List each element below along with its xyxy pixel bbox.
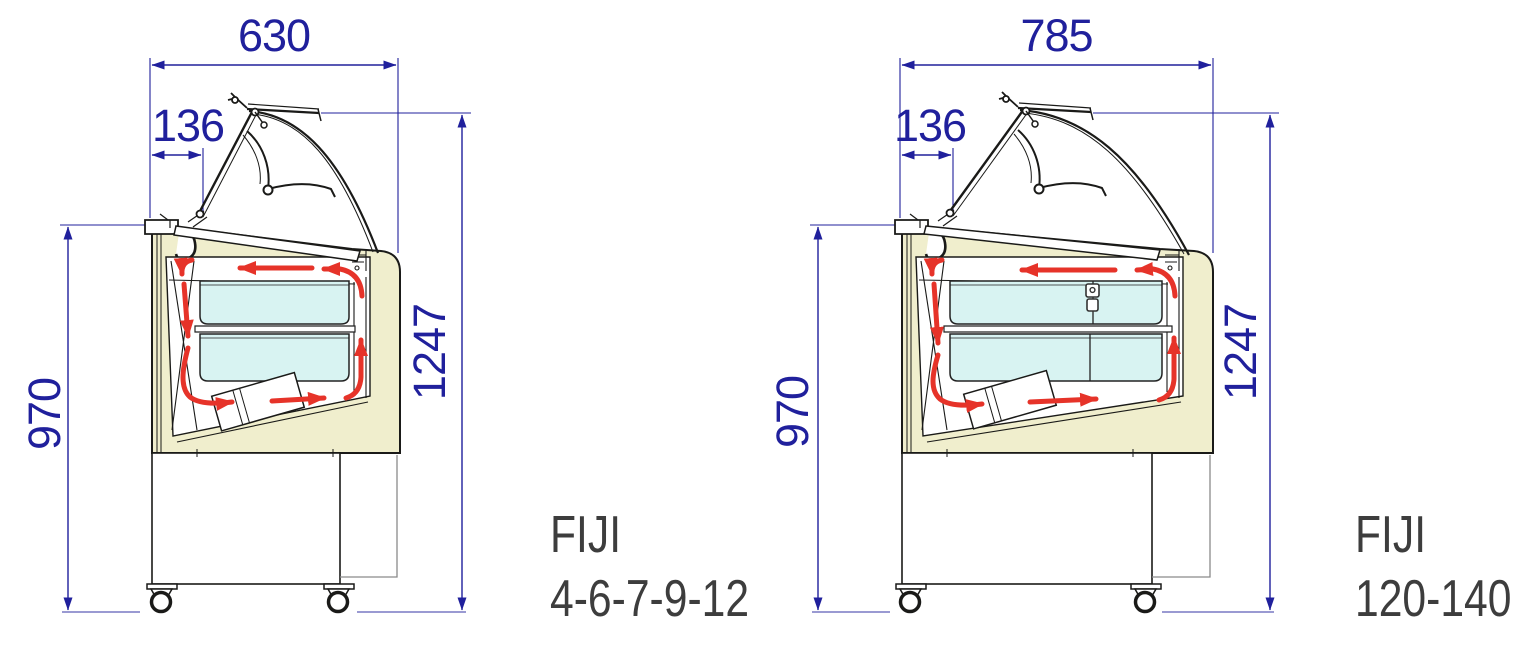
model-range-right: 120-140 [1355, 567, 1511, 631]
technical-drawing-canvas: 630 136 970 1247 785 136 970 1247 FIJI 4… [0, 0, 1516, 662]
dim-label-overall-height-right: 1247 [1217, 292, 1263, 412]
right-caster-front [896, 584, 926, 612]
left-base-cabinet [152, 449, 397, 584]
model-label-right: FIJI 120-140 [1355, 503, 1511, 631]
right-base-cabinet [902, 449, 1210, 584]
model-name-right: FIJI [1355, 503, 1511, 567]
dim-label-lid-overhang-right: 136 [890, 102, 970, 150]
right-unit-drawing [810, 58, 1279, 612]
tub-latch [1086, 284, 1099, 311]
left-caster-front [147, 584, 177, 612]
model-name-left: FIJI [550, 503, 749, 567]
dim-label-body-height-left: 970 [21, 354, 67, 474]
dim-label-body-height-right: 970 [769, 352, 815, 472]
model-range-left: 4-6-7-9-12 [550, 567, 749, 631]
dim-label-overall-width-right: 785 [900, 12, 1213, 60]
right-caster-rear [1131, 584, 1161, 612]
dim-label-overall-width-left: 630 [150, 12, 398, 60]
left-caster-rear [324, 584, 354, 612]
dim-label-overall-height-left: 1247 [406, 292, 452, 412]
drawing-svg [0, 0, 1516, 662]
dim-label-lid-overhang-left: 136 [148, 102, 228, 150]
left-tubs [195, 281, 355, 381]
right-tubs [944, 281, 1172, 381]
model-label-left: FIJI 4-6-7-9-12 [550, 503, 749, 631]
